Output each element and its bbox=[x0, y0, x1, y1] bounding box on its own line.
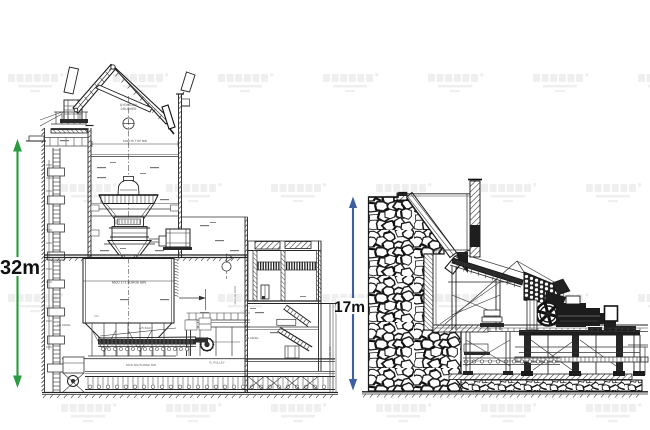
svg-text:MCD 301 DETR: MCD 301 DETR bbox=[234, 286, 237, 305]
svg-text:1060 t/h TOP BIN: 1060 t/h TOP BIN bbox=[123, 139, 147, 143]
svg-text:7/10: 7/10 bbox=[93, 315, 99, 318]
svg-text:A/S INLET: A/S INLET bbox=[139, 326, 153, 330]
svg-text:MCD N/A SURGE BIN: MCD N/A SURGE BIN bbox=[126, 363, 156, 367]
svg-text:G. PULLEY: G. PULLEY bbox=[209, 361, 225, 365]
svg-text:CRUSHER: CRUSHER bbox=[121, 107, 137, 111]
svg-text:T/2 PANEL: T/2 PANEL bbox=[57, 323, 71, 327]
svg-text:17m: 17m bbox=[334, 299, 365, 316]
svg-text:MCD 302: MCD 302 bbox=[329, 346, 332, 358]
svg-text:T/2 PANEL: T/2 PANEL bbox=[245, 336, 259, 340]
svg-text:MCD 171 SURGE BIN: MCD 171 SURGE BIN bbox=[112, 281, 146, 285]
svg-text:32m: 32m bbox=[0, 257, 40, 279]
